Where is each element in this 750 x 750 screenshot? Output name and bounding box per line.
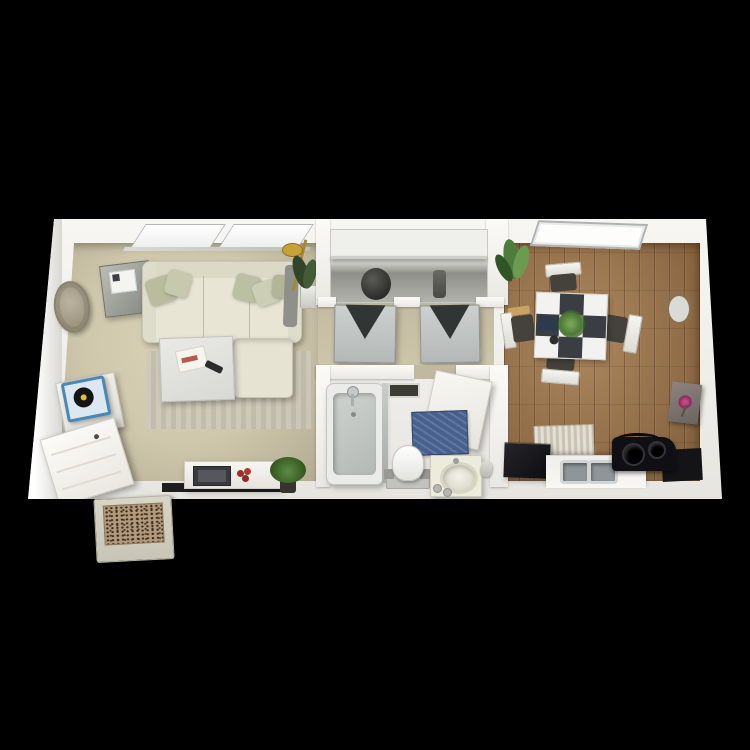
checker-dark-4 bbox=[558, 337, 583, 359]
door-panel-line-2 bbox=[56, 453, 116, 473]
coffee-table bbox=[159, 336, 235, 403]
tub-basin bbox=[333, 393, 376, 475]
floor-plan-image bbox=[0, 0, 750, 750]
window-pane-left-icon bbox=[130, 224, 226, 248]
console-potted-plant bbox=[270, 457, 306, 495]
door-panel-line-1 bbox=[51, 436, 111, 456]
bifold-door-left bbox=[333, 304, 396, 363]
magazine-label bbox=[181, 355, 198, 363]
checkerboard-dining-table bbox=[534, 292, 608, 360]
tub-faucet-stem bbox=[351, 394, 354, 406]
dining-chair-left bbox=[499, 305, 538, 349]
pot-handle-arc bbox=[616, 433, 660, 446]
dining-window bbox=[530, 220, 648, 250]
closet-front-stub-right bbox=[476, 297, 504, 307]
doormat-pattern bbox=[103, 502, 165, 545]
building-shell bbox=[28, 219, 722, 499]
door-panel-line-3 bbox=[62, 470, 122, 490]
closet-shelf-edge bbox=[331, 256, 487, 259]
mirror-glass bbox=[667, 294, 691, 324]
tv-inner bbox=[198, 470, 226, 482]
bathtub bbox=[326, 383, 384, 485]
flower-dot-2 bbox=[244, 468, 251, 475]
chair-bottom-back bbox=[541, 368, 580, 385]
vanity-knob-1 bbox=[433, 484, 442, 493]
dining-corner-plant bbox=[496, 237, 536, 295]
bathroom-top-wall-left bbox=[316, 365, 414, 379]
black-refrigerator bbox=[503, 442, 550, 479]
burner-large-icon bbox=[622, 443, 645, 466]
bifold-door-right bbox=[419, 304, 480, 363]
toilet-lid bbox=[392, 445, 424, 481]
apartment-plan bbox=[28, 219, 722, 499]
tray-item bbox=[112, 274, 120, 282]
closet-front-stub-middle bbox=[394, 297, 420, 307]
closet-front-stub-left bbox=[318, 297, 336, 307]
flower-wall-art bbox=[668, 381, 703, 424]
remote-control bbox=[204, 360, 223, 374]
tv bbox=[193, 466, 231, 486]
table-teapot-icon bbox=[549, 335, 558, 344]
magazine bbox=[175, 345, 209, 373]
closet-left-wall bbox=[316, 219, 330, 305]
sink-faucet-icon bbox=[453, 458, 459, 464]
tub-drain-icon bbox=[351, 412, 356, 417]
ceiling-vent bbox=[388, 383, 420, 398]
console-plant-leaves bbox=[270, 457, 306, 483]
chair-top-seat bbox=[550, 273, 577, 292]
media-console bbox=[184, 461, 282, 489]
closet-vase bbox=[433, 270, 446, 298]
vanity-knob-2 bbox=[443, 488, 452, 497]
red-flowers bbox=[237, 468, 257, 482]
record-player bbox=[61, 375, 112, 423]
living-window bbox=[120, 221, 302, 251]
black-cooktop-stove bbox=[612, 437, 676, 471]
flower-dot-3 bbox=[242, 475, 249, 482]
wicker-round-mirror bbox=[656, 281, 698, 333]
sofa-seam-1 bbox=[203, 276, 204, 340]
sink-basin-left-icon bbox=[560, 460, 590, 484]
vanity-with-round-sink bbox=[430, 455, 482, 497]
closet-interior bbox=[330, 229, 488, 303]
toilet bbox=[384, 445, 430, 487]
cabinet-tray bbox=[109, 269, 137, 294]
navy-placemat bbox=[539, 316, 558, 331]
laundry-hamper bbox=[361, 268, 391, 300]
chair-left-seat bbox=[511, 314, 536, 343]
entry-doormat bbox=[93, 495, 174, 563]
checker-dark-3 bbox=[583, 315, 607, 338]
sofa-chaise bbox=[233, 338, 293, 398]
dining-chair-top bbox=[545, 261, 583, 294]
